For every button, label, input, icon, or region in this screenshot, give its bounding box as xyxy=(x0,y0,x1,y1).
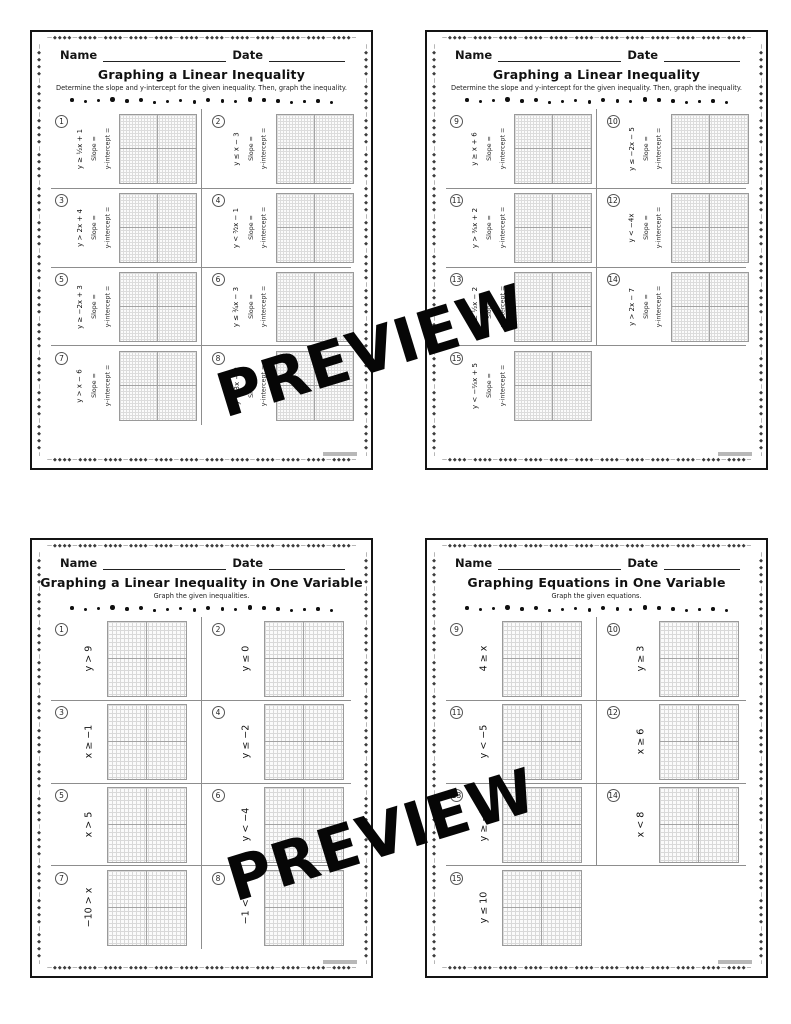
inequality-text-column: x > 5 xyxy=(75,819,103,830)
inequality-label: y ≤ 10 xyxy=(479,892,490,924)
worksheet-page: —◆◆◆◆—◆◆◆◆—◆◆◆◆—◆◆◆◆—◆◆◆◆—◆◆◆◆—◆◆◆◆—◆◆◆◆… xyxy=(30,30,373,470)
page-instructions: Graph the given inequalities. xyxy=(32,592,371,600)
divider-dot xyxy=(316,99,320,103)
inequality-text-column: y > x − 6 xyxy=(72,382,88,390)
border-ornament: —◆◆◆◆—◆◆◆◆—◆◆◆◆—◆◆◆◆—◆◆◆◆—◆◆◆◆—◆◆◆◆—◆◆◆◆… xyxy=(361,552,369,964)
divider-dot xyxy=(193,100,197,104)
slope-label-column: Slope = xyxy=(88,382,101,389)
inequality-label: y ≥ x + 6 xyxy=(471,132,479,165)
name-label: Name xyxy=(60,556,97,570)
inequality-label: y < ³⁄₂x − 1 xyxy=(233,207,241,247)
problems-grid: 9y ≥ x + 6Slope =y-intercept =10y ≤ −2x … xyxy=(440,109,753,425)
credit-text xyxy=(718,960,752,964)
divider-dot xyxy=(330,609,333,612)
slope-label: Slope = xyxy=(91,136,98,161)
problem-number: 12 xyxy=(607,706,620,719)
slope-label: Slope = xyxy=(643,215,650,240)
problem-cell: 14x < 8 xyxy=(597,783,754,866)
problem-number: 4 xyxy=(212,706,225,719)
page-title: Graphing a Linear Inequality xyxy=(427,67,766,82)
divider-dot xyxy=(616,607,620,611)
border-ornament: —◆◆◆◆—◆◆◆◆—◆◆◆◆—◆◆◆◆—◆◆◆◆—◆◆◆◆—◆◆◆◆—◆◆◆◆… xyxy=(442,965,751,973)
y-intercept-label-column: y-intercept = xyxy=(496,145,509,152)
problem-cell: 11y > ⅗x + 2Slope =y-intercept = xyxy=(440,188,597,267)
divider-dot xyxy=(84,100,87,103)
page-instructions: Graph the given equations. xyxy=(427,592,766,600)
graph-grid xyxy=(502,870,582,946)
inequality-label: y < −4 xyxy=(240,808,251,842)
divider-dot xyxy=(548,609,551,612)
border-ornament: —◆◆◆◆—◆◆◆◆—◆◆◆◆—◆◆◆◆—◆◆◆◆—◆◆◆◆—◆◆◆◆—◆◆◆◆… xyxy=(442,35,751,43)
inequality-text-column: y < ³⁄₂x − 1 xyxy=(229,224,245,232)
graph-grid xyxy=(119,272,197,342)
divider-dot xyxy=(698,100,701,103)
divider-dot xyxy=(166,100,169,103)
y-intercept-label-column: y-intercept = xyxy=(101,145,114,152)
name-line xyxy=(498,557,621,570)
y-intercept-label-column: y-intercept = xyxy=(101,224,114,231)
graph-grid xyxy=(514,193,592,263)
problem-cell: 1y ≥ ½x + 1Slope =y-intercept = xyxy=(45,109,202,188)
y-intercept-label: y-intercept = xyxy=(104,365,111,407)
credit-text xyxy=(718,452,752,456)
y-intercept-label: y-intercept = xyxy=(499,207,506,249)
problems-grid: 1y > 92y ≤ 03x ≥ −14y ≤ −25x > 56y < −47… xyxy=(45,617,358,949)
slope-label: Slope = xyxy=(248,294,255,319)
inequality-label: x ≥ −1 xyxy=(84,725,95,759)
divider-dot xyxy=(588,608,592,612)
dot-divider xyxy=(465,605,728,615)
inequality-label: y > 9 xyxy=(83,646,94,672)
border-ornament: —◆◆◆◆—◆◆◆◆—◆◆◆◆—◆◆◆◆—◆◆◆◆—◆◆◆◆—◆◆◆◆—◆◆◆◆… xyxy=(47,543,356,551)
divider-dot xyxy=(110,97,115,102)
problem-number: 9 xyxy=(450,623,463,636)
slope-label: Slope = xyxy=(248,215,255,240)
border-ornament: —◆◆◆◆—◆◆◆◆—◆◆◆◆—◆◆◆◆—◆◆◆◆—◆◆◆◆—◆◆◆◆—◆◆◆◆… xyxy=(429,552,437,964)
divider-dot xyxy=(685,609,688,612)
graph-grid xyxy=(119,193,197,263)
inequality-label: x ≥ 6 xyxy=(635,729,646,755)
name-line xyxy=(498,49,621,62)
inequality-text-column: y ≤ −2 xyxy=(232,736,260,747)
problem-number: 12 xyxy=(607,194,620,207)
problem-number: 13 xyxy=(450,273,463,286)
slope-label-column: Slope = xyxy=(88,145,101,152)
divider-dot xyxy=(548,101,551,104)
divider-dot xyxy=(479,608,482,611)
worksheet-page: —◆◆◆◆—◆◆◆◆—◆◆◆◆—◆◆◆◆—◆◆◆◆—◆◆◆◆—◆◆◆◆—◆◆◆◆… xyxy=(30,538,373,978)
border-ornament: —◆◆◆◆—◆◆◆◆—◆◆◆◆—◆◆◆◆—◆◆◆◆—◆◆◆◆—◆◆◆◆—◆◆◆◆… xyxy=(34,44,42,456)
problem-cell: 3x ≥ −1 xyxy=(45,700,202,783)
divider-dot xyxy=(153,609,156,612)
credit-text xyxy=(323,960,357,964)
divider-dot xyxy=(70,606,74,610)
slope-label-column: Slope = xyxy=(245,224,258,231)
inequality-label: y ≤ ¾x − 3 xyxy=(233,286,241,326)
slope-label-column: Slope = xyxy=(483,145,496,152)
divider-dot xyxy=(561,608,564,611)
y-intercept-label: y-intercept = xyxy=(104,207,111,249)
divider-dot xyxy=(276,99,280,103)
border-ornament: —◆◆◆◆—◆◆◆◆—◆◆◆◆—◆◆◆◆—◆◆◆◆—◆◆◆◆—◆◆◆◆—◆◆◆◆… xyxy=(429,44,437,456)
slope-label-column: Slope = xyxy=(640,303,653,310)
inequality-text-column: y ≤ 0 xyxy=(232,653,260,664)
divider-dot xyxy=(234,608,237,611)
problem-cell: 1y > 9 xyxy=(45,617,202,700)
inequality-text-column: y ≤ x − 3 xyxy=(229,145,245,153)
divider-dot xyxy=(657,98,661,102)
border-ornament: —◆◆◆◆—◆◆◆◆—◆◆◆◆—◆◆◆◆—◆◆◆◆—◆◆◆◆—◆◆◆◆—◆◆◆◆… xyxy=(47,35,356,43)
divider-dot xyxy=(193,608,197,612)
divider-dot xyxy=(303,100,306,103)
divider-dot xyxy=(671,607,675,611)
divider-dot xyxy=(505,97,510,102)
slope-label-column: Slope = xyxy=(640,145,653,152)
problem-cell: 10y ≥ 3 xyxy=(597,617,754,700)
divider-dot xyxy=(465,606,469,610)
date-label: Date xyxy=(232,556,263,570)
name-date-row: NameDate xyxy=(60,556,345,570)
divider-dot xyxy=(520,607,524,611)
graph-grid xyxy=(671,272,749,342)
dot-divider xyxy=(465,97,728,107)
date-line xyxy=(269,557,345,570)
graph-grid xyxy=(514,351,592,421)
divider-dot xyxy=(330,101,333,104)
inequality-label: y ≤ −2x − 5 xyxy=(628,127,636,171)
inequality-text-column: y ≤ −2x − 5 xyxy=(624,145,640,153)
divider-dot xyxy=(153,101,156,104)
inequality-label: y ≥ ½x + 1 xyxy=(76,128,84,168)
date-line xyxy=(664,557,740,570)
y-intercept-label-column: y-intercept = xyxy=(496,382,509,389)
y-intercept-label: y-intercept = xyxy=(656,128,663,170)
inequality-label: y > x − 6 xyxy=(76,369,84,402)
slope-label: Slope = xyxy=(643,136,650,161)
divider-dot xyxy=(629,608,632,611)
inequality-label: x < 8 xyxy=(635,812,646,838)
y-intercept-label-column: y-intercept = xyxy=(101,382,114,389)
problem-number: 7 xyxy=(55,872,68,885)
divider-dot xyxy=(125,99,129,103)
y-intercept-label-column: y-intercept = xyxy=(258,303,271,310)
inequality-label: y > ⅗x + 2 xyxy=(471,207,479,247)
inequality-label: y < −5 xyxy=(479,725,490,759)
slope-label: Slope = xyxy=(643,294,650,319)
y-intercept-label-column: y-intercept = xyxy=(258,224,271,231)
divider-dot xyxy=(248,605,253,610)
y-intercept-label: y-intercept = xyxy=(261,286,268,328)
divider-dot xyxy=(534,606,538,610)
graph-grid xyxy=(671,114,749,184)
y-intercept-label-column: y-intercept = xyxy=(653,303,666,310)
empty-cell xyxy=(597,346,754,425)
inequality-label: y > 2x + 4 xyxy=(76,209,84,247)
divider-dot xyxy=(671,99,675,103)
divider-dot xyxy=(84,608,87,611)
inequality-text-column: y > ⅗x + 2 xyxy=(467,224,483,232)
slope-label-column: Slope = xyxy=(245,303,258,310)
divider-dot xyxy=(125,607,129,611)
problem-number: 11 xyxy=(450,194,463,207)
problem-cell: 10y ≤ −2x − 5Slope =y-intercept = xyxy=(597,109,754,188)
border-ornament: —◆◆◆◆—◆◆◆◆—◆◆◆◆—◆◆◆◆—◆◆◆◆—◆◆◆◆—◆◆◆◆—◆◆◆◆… xyxy=(47,457,356,465)
inequality-text-column: y ≤ 10 xyxy=(470,902,498,913)
inequality-label: y ≥ 3 xyxy=(635,646,646,672)
inequality-text-column: y < −4x xyxy=(624,224,640,232)
slope-label-column: Slope = xyxy=(88,224,101,231)
inequality-text-column: y ≥ 3 xyxy=(627,653,655,664)
inequality-text-column: y ≥ −2x + 3 xyxy=(72,303,88,311)
slope-label-column: Slope = xyxy=(483,382,496,389)
page-instructions: Determine the slope and y-intercept for … xyxy=(427,84,766,92)
graph-grid xyxy=(264,704,344,780)
date-line xyxy=(269,49,345,62)
divider-dot xyxy=(179,607,182,610)
slope-label: Slope = xyxy=(91,215,98,240)
dot-divider xyxy=(70,605,333,615)
page-instructions: Determine the slope and y-intercept for … xyxy=(32,84,371,92)
problem-number: 5 xyxy=(55,789,68,802)
problem-cell: 4y ≤ −2 xyxy=(202,700,359,783)
divider-dot xyxy=(221,607,225,611)
divider-dot xyxy=(657,606,661,610)
inequality-text-column: y < −⅔x + 5 xyxy=(467,382,483,390)
divider-dot xyxy=(616,99,620,103)
y-intercept-label: y-intercept = xyxy=(104,286,111,328)
problem-number: 10 xyxy=(607,115,620,128)
divider-dot xyxy=(574,99,577,102)
graph-grid xyxy=(659,787,739,863)
divider-dot xyxy=(290,609,293,612)
divider-dot xyxy=(505,605,510,610)
page-title: Graphing a Linear Inequality in One Vari… xyxy=(32,575,371,590)
inequality-text-column: y > 2x − 7 xyxy=(624,303,640,311)
border-ornament: —◆◆◆◆—◆◆◆◆—◆◆◆◆—◆◆◆◆—◆◆◆◆—◆◆◆◆—◆◆◆◆—◆◆◆◆… xyxy=(442,457,751,465)
inequality-label: y ≤ −2 xyxy=(240,725,251,759)
name-date-row: NameDate xyxy=(455,556,740,570)
slope-label: Slope = xyxy=(248,136,255,161)
divider-dot xyxy=(276,607,280,611)
divider-dot xyxy=(290,101,293,104)
y-intercept-label: y-intercept = xyxy=(261,207,268,249)
y-intercept-label: y-intercept = xyxy=(656,207,663,249)
inequality-label: x > 5 xyxy=(83,812,94,838)
slope-label-column: Slope = xyxy=(483,224,496,231)
y-intercept-label: y-intercept = xyxy=(656,286,663,328)
inequality-label: y < −⅔x + 5 xyxy=(471,362,479,408)
divider-dot xyxy=(561,100,564,103)
y-intercept-label-column: y-intercept = xyxy=(101,303,114,310)
problem-number: 9 xyxy=(450,115,463,128)
graph-grid xyxy=(502,621,582,697)
divider-dot xyxy=(492,607,495,610)
credit-text xyxy=(323,452,357,456)
divider-dot xyxy=(725,101,728,104)
inequality-text-column: y < −5 xyxy=(470,736,498,747)
name-label: Name xyxy=(60,48,97,62)
name-line xyxy=(103,49,226,62)
date-label: Date xyxy=(627,48,658,62)
problem-cell: 5x > 5 xyxy=(45,783,202,866)
divider-dot xyxy=(316,607,320,611)
slope-label: Slope = xyxy=(486,136,493,161)
name-label: Name xyxy=(455,556,492,570)
inequality-text-column: 4 ≥ x xyxy=(470,653,498,664)
divider-dot xyxy=(303,608,306,611)
inequality-label: y < −4x xyxy=(628,213,636,242)
name-date-row: NameDate xyxy=(60,48,345,62)
divider-dot xyxy=(206,606,210,610)
graph-grid xyxy=(107,621,187,697)
problem-number: 5 xyxy=(55,273,68,286)
problem-cell: 4y < ³⁄₂x − 1Slope =y-intercept = xyxy=(202,188,359,267)
divider-dot xyxy=(110,605,115,610)
date-label: Date xyxy=(627,556,658,570)
inequality-label: y > 2x − 7 xyxy=(628,288,636,326)
border-ornament: —◆◆◆◆—◆◆◆◆—◆◆◆◆—◆◆◆◆—◆◆◆◆—◆◆◆◆—◆◆◆◆—◆◆◆◆… xyxy=(756,552,764,964)
inequality-label: 4 ≥ x xyxy=(478,646,489,672)
empty-cell xyxy=(597,866,754,949)
divider-dot xyxy=(574,607,577,610)
problem-cell: 2y ≤ x − 3Slope =y-intercept = xyxy=(202,109,359,188)
date-line xyxy=(664,49,740,62)
problem-number: 2 xyxy=(212,115,225,128)
border-ornament: —◆◆◆◆—◆◆◆◆—◆◆◆◆—◆◆◆◆—◆◆◆◆—◆◆◆◆—◆◆◆◆—◆◆◆◆… xyxy=(47,965,356,973)
problem-cell: 7y > x − 6Slope =y-intercept = xyxy=(45,346,202,425)
divider-dot xyxy=(534,98,538,102)
slope-label: Slope = xyxy=(91,373,98,398)
inequality-text-column: y ≤ ¾x − 3 xyxy=(229,303,245,311)
graph-grid xyxy=(107,870,187,946)
graph-grid xyxy=(671,193,749,263)
graph-grid xyxy=(107,704,187,780)
problem-number: 1 xyxy=(55,115,68,128)
problem-cell: 9y ≥ x + 6Slope =y-intercept = xyxy=(440,109,597,188)
divider-dot xyxy=(139,606,143,610)
problem-number: 3 xyxy=(55,706,68,719)
graph-grid xyxy=(119,114,197,184)
y-intercept-label: y-intercept = xyxy=(499,365,506,407)
divider-dot xyxy=(711,99,715,103)
divider-dot xyxy=(725,609,728,612)
slope-label: Slope = xyxy=(486,373,493,398)
problem-number: 10 xyxy=(607,623,620,636)
name-line xyxy=(103,557,226,570)
problem-number: 14 xyxy=(607,789,620,802)
problem-cell: 12y < −4xSlope =y-intercept = xyxy=(597,188,754,267)
divider-dot xyxy=(685,101,688,104)
divider-dot xyxy=(465,98,469,102)
problem-cell: 14y > 2x − 7Slope =y-intercept = xyxy=(597,267,754,346)
inequality-text-column: y < −4 xyxy=(232,819,260,830)
slope-label: Slope = xyxy=(486,215,493,240)
y-intercept-label: y-intercept = xyxy=(499,128,506,170)
graph-grid xyxy=(107,787,187,863)
border-ornament: —◆◆◆◆—◆◆◆◆—◆◆◆◆—◆◆◆◆—◆◆◆◆—◆◆◆◆—◆◆◆◆—◆◆◆◆… xyxy=(361,44,369,456)
inequality-text-column: y > 2x + 4 xyxy=(72,224,88,232)
inequality-text-column: y ≥ ½x + 1 xyxy=(72,145,88,153)
y-intercept-label: y-intercept = xyxy=(261,128,268,170)
inequality-text-column: −10 > x xyxy=(75,902,103,913)
border-ornament: —◆◆◆◆—◆◆◆◆—◆◆◆◆—◆◆◆◆—◆◆◆◆—◆◆◆◆—◆◆◆◆—◆◆◆◆… xyxy=(756,44,764,456)
graph-grid xyxy=(659,621,739,697)
divider-dot xyxy=(492,99,495,102)
divider-dot xyxy=(234,100,237,103)
page-title: Graphing Equations in One Variable xyxy=(427,575,766,590)
divider-dot xyxy=(629,100,632,103)
inequality-label: −10 > x xyxy=(84,888,95,928)
divider-dot xyxy=(601,606,605,610)
problem-number: 6 xyxy=(212,273,225,286)
graph-grid xyxy=(276,114,354,184)
slope-label-column: Slope = xyxy=(245,145,258,152)
name-date-row: NameDate xyxy=(455,48,740,62)
problem-number: 8 xyxy=(212,872,225,885)
y-intercept-label: y-intercept = xyxy=(104,128,111,170)
divider-dot xyxy=(70,98,74,102)
problem-cell: 5y ≥ −2x + 3Slope =y-intercept = xyxy=(45,267,202,346)
worksheet-preview-canvas: —◆◆◆◆—◆◆◆◆—◆◆◆◆—◆◆◆◆—◆◆◆◆—◆◆◆◆—◆◆◆◆—◆◆◆◆… xyxy=(0,0,791,1024)
inequality-label: y ≤ 0 xyxy=(240,646,251,672)
y-intercept-label-column: y-intercept = xyxy=(496,224,509,231)
problem-cell: 3y > 2x + 4Slope =y-intercept = xyxy=(45,188,202,267)
problem-number: 1 xyxy=(55,623,68,636)
y-intercept-label-column: y-intercept = xyxy=(653,224,666,231)
problem-cell: 7−10 > x xyxy=(45,866,202,949)
border-ornament: —◆◆◆◆—◆◆◆◆—◆◆◆◆—◆◆◆◆—◆◆◆◆—◆◆◆◆—◆◆◆◆—◆◆◆◆… xyxy=(442,543,751,551)
divider-dot xyxy=(262,606,266,610)
divider-dot xyxy=(97,607,100,610)
page-title: Graphing a Linear Inequality xyxy=(32,67,371,82)
divider-dot xyxy=(221,99,225,103)
name-label: Name xyxy=(455,48,492,62)
slope-label: Slope = xyxy=(91,294,98,319)
problem-number: 4 xyxy=(212,194,225,207)
divider-dot xyxy=(520,99,524,103)
divider-dot xyxy=(206,98,210,102)
problem-cell: 12x ≥ 6 xyxy=(597,700,754,783)
slope-label-column: Slope = xyxy=(640,224,653,231)
problem-cell: 15y ≤ 10 xyxy=(440,866,597,949)
divider-dot xyxy=(601,98,605,102)
problem-cell: 94 ≥ x xyxy=(440,617,597,700)
problem-cell: 2y ≤ 0 xyxy=(202,617,359,700)
inequality-text-column: x < 8 xyxy=(627,819,655,830)
divider-dot xyxy=(643,605,648,610)
worksheet-page: —◆◆◆◆—◆◆◆◆—◆◆◆◆—◆◆◆◆—◆◆◆◆—◆◆◆◆—◆◆◆◆—◆◆◆◆… xyxy=(425,538,768,978)
slope-label-column: Slope = xyxy=(88,303,101,310)
graph-grid xyxy=(514,114,592,184)
divider-dot xyxy=(588,100,592,104)
y-intercept-label-column: y-intercept = xyxy=(258,145,271,152)
divider-dot xyxy=(698,608,701,611)
graph-grid xyxy=(119,351,197,421)
problem-number: 11 xyxy=(450,706,463,719)
divider-dot xyxy=(139,98,143,102)
problem-number: 6 xyxy=(212,789,225,802)
divider-dot xyxy=(179,99,182,102)
divider-dot xyxy=(97,99,100,102)
divider-dot xyxy=(479,100,482,103)
date-label: Date xyxy=(232,48,263,62)
problem-number: 2 xyxy=(212,623,225,636)
problem-number: 7 xyxy=(55,352,68,365)
border-ornament: —◆◆◆◆—◆◆◆◆—◆◆◆◆—◆◆◆◆—◆◆◆◆—◆◆◆◆—◆◆◆◆—◆◆◆◆… xyxy=(34,552,42,964)
inequality-text-column: x ≥ −1 xyxy=(75,736,103,747)
divider-dot xyxy=(711,607,715,611)
graph-grid xyxy=(276,193,354,263)
